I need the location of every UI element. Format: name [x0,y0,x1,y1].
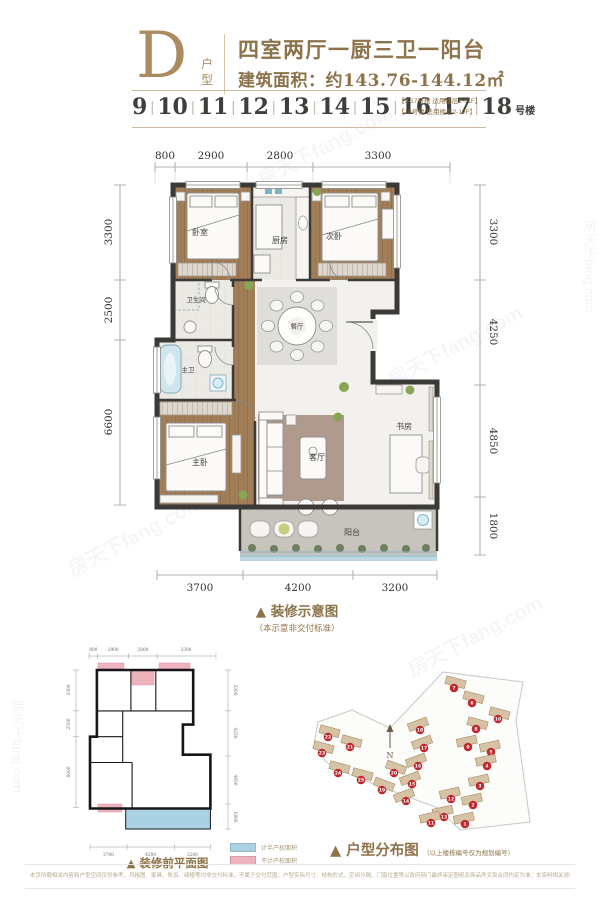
svg-text:23: 23 [319,751,325,757]
header-rule-top [132,90,486,91]
bench [232,435,241,473]
svg-text:24: 24 [335,771,341,777]
svg-text:12: 12 [448,797,454,803]
footer-divider [25,864,575,865]
dim-label: 2500 [103,297,115,324]
building-marker: 11 [419,811,440,827]
svg-text:7: 7 [452,686,455,692]
svg-text:3: 3 [478,784,481,790]
washing-machine-door [213,378,223,388]
mini-interior-walls [90,670,193,809]
svg-text:10: 10 [495,717,501,723]
building-number: 13 [279,94,310,120]
building-number-separator: | [353,99,357,116]
distribution-caption-title: ▲ 户型分布图 [330,842,419,859]
washing-machine-door [418,515,429,526]
toilet [199,351,212,368]
svg-text:13: 13 [441,815,447,821]
dim-label: 1800 [487,513,499,540]
mini-dim-label: 4850 [232,775,237,786]
header-divider [224,34,225,94]
svg-text:6: 6 [470,701,473,707]
mini-dim-label: 3300 [181,648,192,653]
room-label: 主卧 [192,457,208,467]
building-number-separator: | [394,99,398,116]
building-number: 9 [132,94,147,120]
room-label: 餐厅 [291,322,305,331]
plant [279,524,290,535]
dims-top: 800 2900 2800 3300 [155,150,450,183]
mini-dim-label: 2500 [67,718,72,729]
svg-text:2: 2 [471,803,474,809]
building-number: 11 [198,94,229,120]
svg-text:16: 16 [415,764,421,770]
wardrobe [318,263,386,276]
mini-dim-label: 6600 [67,766,72,777]
cabinet [376,385,402,394]
svg-text:11: 11 [428,821,434,827]
planter [298,521,318,537]
side-table [286,415,296,425]
mini-dim-label: 1800 [232,812,237,823]
dim-label: 2800 [267,150,294,162]
svg-text:19: 19 [379,788,385,794]
dims-bottom: 3700 4200 3200 [157,570,437,594]
sofa-seat [267,423,283,495]
sink [299,216,308,230]
wardrobe [160,402,232,415]
dim-label: 3300 [487,219,499,246]
svg-text:8: 8 [474,727,477,733]
svg-text:20: 20 [391,771,397,777]
building-number: 18 [481,94,512,120]
dim-label: 3300 [103,219,115,246]
watermark: 房天下fang.com [8,700,27,792]
room-label: 客厅 [309,452,325,462]
plan-area: 建筑面积：约143.76-144.12㎡ [238,66,504,91]
svg-text:14: 14 [403,799,409,805]
dims-right: 3300 4250 4850 1800 [474,185,499,555]
legend-swatch-blue [230,843,256,852]
dim-label: 3700 [187,582,214,594]
plan-letter-label: 户型 [200,56,214,88]
floor-note-line: 【9-17号楼 适用楼层2-11F】 [398,96,481,107]
svg-text:15: 15 [409,782,415,788]
distribution-caption: ▲ 户型分布图 （以上楼栋编号仅为规划编号） [330,839,570,860]
main-plan-caption-sub: （本示意非交付标准） [254,623,339,634]
building-number-separator: | [312,99,316,116]
building-number-separator: | [150,99,154,116]
room-label: 次卧 [326,231,342,241]
wardrobe [178,263,236,276]
disclaimer-text: 本页所载相关内容和户型空间仅供参考，风格图、家具、陈设、绿植等均非交付标准，不属… [30,871,570,879]
mini-dim-label: 4250 [232,728,237,739]
floor-notes: 【9-17号楼 适用楼层2-11F】 【18号楼 适用楼层2-10F】 [398,96,481,118]
dresser [382,209,394,239]
room-label: 卧室 [192,227,208,237]
mini-exterior-walls [90,670,210,809]
building-number-separator: | [231,99,235,116]
distribution-map: 7610895432118171615141312111920252423222… [298,652,556,844]
corridor-floor [233,280,255,400]
room-label: 卫生间 [186,295,206,304]
main-floor-plan: 卧室 厨房 次卧 卫生间 主卫 餐厅 主卧 客厅 书房 阳台 800 2900 … [0,135,600,655]
distribution-caption-note: （以上楼栋编号仅为规划编号） [423,850,514,857]
svg-text:21: 21 [347,745,353,751]
header-rule-bottom [132,127,486,128]
main-plan-caption: ▲ 装修示意图 [256,603,339,620]
room-label: 主卫 [182,365,196,374]
floor-note-line: 【18号楼 适用楼层2-10F】 [398,107,481,118]
compass-label: N [387,751,394,760]
pink-areas [98,663,190,812]
mini-dim-label: 800 [89,648,97,653]
dim-label: 2900 [198,150,225,162]
mini-dim-label: 2900 [108,648,119,653]
planter [250,521,270,537]
pre-decoration-plan: 800 2900 2800 3300 3300 2500 6600 3300 4… [60,642,275,877]
balcony-area-blue [126,809,211,830]
building-number-separator: | [191,99,195,116]
svg-text:4: 4 [485,764,488,770]
room-label: 阳台 [344,527,360,537]
fridge [254,255,270,273]
mini-dim-label: 2800 [137,648,148,653]
building-number: 12 [238,94,269,120]
building-number: 15 [360,94,391,120]
dim-label: 800 [155,150,175,162]
area-legend: 计半产权面积 不计产权面积 [230,843,297,869]
plan-title: 四室两厅一厨三卫一阳台 [238,34,486,64]
building-number-suffix: 号楼 [515,102,535,117]
dim-label: 3300 [365,150,392,162]
svg-text:18: 18 [417,728,423,734]
sofa-back [259,419,267,499]
legend-label: 计半产权面积 [261,843,297,852]
dim-label: 4200 [285,582,312,594]
svg-text:22: 22 [325,735,331,741]
plan-letter: D [136,24,187,88]
svg-text:17: 17 [421,746,427,752]
mini-dim-label: 3300 [232,685,237,696]
room-label: 书房 [396,421,412,431]
svg-text:25: 25 [358,778,364,784]
washbasin [184,321,196,333]
bathtub-inner [164,353,176,385]
building-number: 14 [319,94,350,120]
footer-divider [25,888,575,889]
legend-row: 计半产权面积 [230,843,297,852]
room-label: 厨房 [272,235,288,245]
svg-text:1: 1 [463,822,466,828]
dims-left: 3300 2500 6600 [103,185,126,505]
bath-floor [173,280,233,340]
dim-label: 4850 [487,428,499,455]
tv-cabinet [160,495,218,503]
building-number-separator: | [272,99,276,116]
desk-chair [416,457,430,473]
dim-label: 6600 [103,409,115,436]
dim-label: 4250 [487,319,499,346]
building-number: 10 [157,94,188,120]
dim-label: 3200 [382,582,409,594]
floorplan-page: 房天下fang.com 房天下fang.com 房天下fang.com 房天下f… [0,0,600,900]
mini-dim-label: 3300 [67,684,72,695]
svg-text:9: 9 [466,745,469,751]
